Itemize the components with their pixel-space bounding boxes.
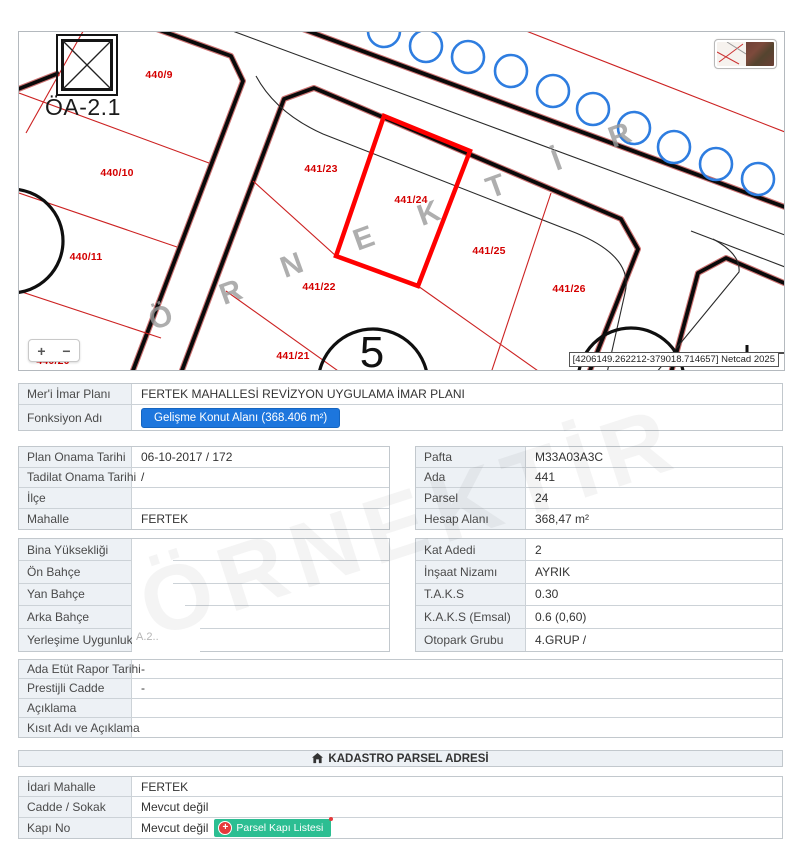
row-label: Mahalle (19, 509, 132, 530)
table-row: İdari MahalleFERTEK (19, 777, 782, 797)
row-value: 368,47 m² (526, 509, 782, 530)
row-value: FERTEK (132, 777, 782, 796)
value-text: - (141, 681, 145, 695)
row-label: Parsel (416, 488, 526, 508)
table-row: Plan Onama Tarihi06-10-2017 / 172 (19, 447, 389, 468)
row-value: Mevcut değil+Parsel Kapı Listesi (132, 818, 782, 838)
table-row: Ada Etüt Rapor Tarihi- (19, 660, 782, 679)
row-label: Otopark Grubu (416, 629, 526, 651)
function-zone-button[interactable]: Gelişme Konut Alanı (368.406 m²) (141, 408, 340, 428)
row-value: 4.GRUP / (526, 629, 782, 651)
value-text: FERTEK MAHALLESİ REVİZYON UYGULAMA İMAR … (141, 387, 465, 401)
row-label: Ada Etüt Rapor Tarihi (19, 660, 132, 678)
value-text: / (141, 470, 144, 484)
block-440-boundary (129, 32, 243, 370)
tree-row (368, 32, 774, 195)
parcel-label: 440/9 (145, 69, 172, 81)
value-text: 0.30 (535, 587, 558, 601)
setback-table: Bina YüksekliğiÖn BahçeYan BahçeArka Bah… (18, 538, 390, 652)
imar-durumu-page: ÖA-2.1 440/9440/10440/11441/23441/24441/… (0, 0, 807, 841)
table-row: Hesap Alanı368,47 m² (416, 509, 782, 530)
value-text: M33A03A3C (535, 450, 603, 464)
row-value: Gelişme Konut Alanı (368.406 m²) (132, 405, 782, 430)
table-row: İlçe (19, 488, 389, 509)
row-value: Mevcut değil (132, 797, 782, 816)
parcel-label: 440/10 (100, 167, 133, 179)
notification-badge (329, 817, 333, 821)
value-text: Mevcut değil (141, 821, 208, 835)
parcel-label: 441/26 (552, 283, 585, 295)
parcel-label: 441/21 (276, 350, 309, 362)
redacted-value-hint: A.2.. (136, 631, 159, 643)
row-label: Ön Bahçe (19, 561, 132, 582)
table-row: Yan Bahçe (19, 584, 389, 606)
cadastral-map[interactable]: ÖA-2.1 440/9440/10440/11441/23441/24441/… (18, 31, 785, 371)
plan-info-table: Mer'i İmar PlanıFERTEK MAHALLESİ REVİZYO… (18, 383, 783, 431)
row-label: Arka Bahçe (19, 606, 132, 627)
value-text: 24 (535, 491, 548, 505)
row-label: Mer'i İmar Planı (19, 384, 132, 404)
zone-legend-icon (56, 34, 118, 96)
row-label: Kapı No (19, 818, 132, 838)
table-row: Kapı NoMevcut değil+Parsel Kapı Listesi (19, 818, 782, 838)
minimap-satellite-half (746, 42, 775, 66)
row-label: Kısıt Adı ve Açıklama (19, 718, 132, 737)
button-label: Gelişme Konut Alanı (368.406 m²) (154, 412, 327, 424)
zoom-out-button[interactable]: − (62, 344, 70, 358)
home-icon (312, 753, 323, 764)
zoom-in-button[interactable]: + (37, 344, 45, 358)
value-text: FERTEK (141, 780, 188, 794)
table-row: Ön Bahçe (19, 561, 389, 583)
value-text: 0.6 (0,60) (535, 610, 586, 624)
row-value: / (132, 468, 389, 488)
main-road-edge (281, 32, 784, 213)
value-text: 06-10-2017 / 172 (141, 450, 232, 464)
row-value: AYRIK (526, 561, 782, 582)
row-label: K.A.K.S (Emsal) (416, 606, 526, 627)
block-number: 2 (18, 219, 19, 269)
row-value: 24 (526, 488, 782, 508)
minimap-plan-half (717, 42, 746, 66)
value-text: AYRIK (535, 565, 570, 579)
parcel-label: 441/23 (304, 163, 337, 175)
row-label: Fonksiyon Adı (19, 405, 132, 430)
address-table: İdari MahalleFERTEKCadde / SokakMevcut d… (18, 776, 783, 839)
table-row: Yerleşime Uygunluk (19, 629, 389, 651)
value-text: 2 (535, 543, 542, 557)
table-row: PaftaM33A03A3C (416, 447, 782, 468)
row-value: M33A03A3C (526, 447, 782, 467)
row-label: Hesap Alanı (416, 509, 526, 530)
row-label: Plan Onama Tarihi (19, 447, 132, 467)
value-text: 4.GRUP / (535, 633, 586, 647)
section-title: KADASTRO PARSEL ADRESİ (328, 753, 488, 765)
table-row: Arka Bahçe (19, 606, 389, 628)
row-label: İdari Mahalle (19, 777, 132, 796)
row-label: Kat Adedi (416, 539, 526, 560)
overview-minimap[interactable] (715, 40, 776, 68)
table-row: Fonksiyon AdıGelişme Konut Alanı (368.40… (19, 405, 782, 430)
parcel-label: 441/25 (472, 245, 505, 257)
button-label: Parsel Kapı Listesi (236, 822, 323, 834)
row-value (132, 488, 389, 508)
row-value: - (132, 679, 782, 697)
plus-circle-icon: + (218, 821, 232, 835)
row-label: Prestijli Cadde (19, 679, 132, 697)
table-row: Bina Yüksekliği (19, 539, 389, 561)
table-row: Kısıt Adı ve Açıklama (19, 718, 782, 737)
table-row: Ada441 (416, 468, 782, 489)
row-value (132, 699, 782, 717)
row-value: 441 (526, 468, 782, 488)
table-row: Cadde / SokakMevcut değil (19, 797, 782, 817)
value-text: Mevcut değil (141, 800, 208, 814)
table-row: Otopark Grubu4.GRUP / (416, 629, 782, 651)
value-text: 441 (535, 470, 555, 484)
parsel-kapi-listesi-button[interactable]: +Parsel Kapı Listesi (214, 819, 331, 837)
redaction-box (132, 605, 185, 628)
notes-table: Ada Etüt Rapor Tarihi-Prestijli Cadde-Aç… (18, 659, 783, 738)
row-value: 0.6 (0,60) (526, 606, 782, 627)
parcel-label: 441/22 (302, 281, 335, 293)
row-label: Bina Yüksekliği (19, 539, 132, 560)
table-row: Açıklama (19, 699, 782, 718)
row-label: T.A.K.S (416, 584, 526, 605)
zone-code-label: ÖA-2.1 (45, 94, 121, 121)
row-label: İnşaat Nizamı (416, 561, 526, 582)
row-label: Tadilat Onama Tarihi (19, 468, 132, 488)
block-number: 5 (360, 328, 384, 371)
parcel-label: 440/11 (70, 251, 103, 263)
table-row: Mer'i İmar PlanıFERTEK MAHALLESİ REVİZYO… (19, 384, 782, 405)
parcel-id-table: PaftaM33A03A3CAda441Parsel24Hesap Alanı3… (415, 446, 783, 530)
value-text: - (141, 662, 145, 676)
row-label: Açıklama (19, 699, 132, 717)
redaction-box (132, 539, 173, 606)
map-coordinates-credit: [4206149.262212-379018.714657] Netcad 20… (569, 352, 779, 367)
row-label: Yerleşime Uygunluk (19, 629, 132, 651)
row-value: 0.30 (526, 584, 782, 605)
row-label: Cadde / Sokak (19, 797, 132, 816)
row-value (132, 718, 782, 737)
map-zoom-control: + − (28, 339, 80, 362)
table-row: T.A.K.S0.30 (416, 584, 782, 606)
value-text: FERTEK (141, 512, 188, 526)
kadastro-section-header: KADASTRO PARSEL ADRESİ (18, 750, 783, 767)
row-value: 06-10-2017 / 172 (132, 447, 389, 467)
table-row: MahalleFERTEK (19, 509, 389, 530)
building-rules-table: Kat Adedi2İnşaat NizamıAYRIKT.A.K.S0.30K… (415, 538, 783, 652)
table-row: Prestijli Cadde- (19, 679, 782, 698)
value-text: 368,47 m² (535, 512, 589, 526)
table-row: İnşaat NizamıAYRIK (416, 561, 782, 583)
row-value: - (132, 660, 782, 678)
table-row: Tadilat Onama Tarihi/ (19, 468, 389, 489)
row-value: FERTEK MAHALLESİ REVİZYON UYGULAMA İMAR … (132, 384, 782, 404)
table-row: K.A.K.S (Emsal)0.6 (0,60) (416, 606, 782, 628)
table-row: Parsel24 (416, 488, 782, 509)
row-label: Pafta (416, 447, 526, 467)
row-label: Ada (416, 468, 526, 488)
plan-dates-table: Plan Onama Tarihi06-10-2017 / 172Tadilat… (18, 446, 390, 530)
row-label: Yan Bahçe (19, 584, 132, 605)
row-label: İlçe (19, 488, 132, 508)
row-value: 2 (526, 539, 782, 560)
row-value: FERTEK (132, 509, 389, 530)
table-row: Kat Adedi2 (416, 539, 782, 561)
